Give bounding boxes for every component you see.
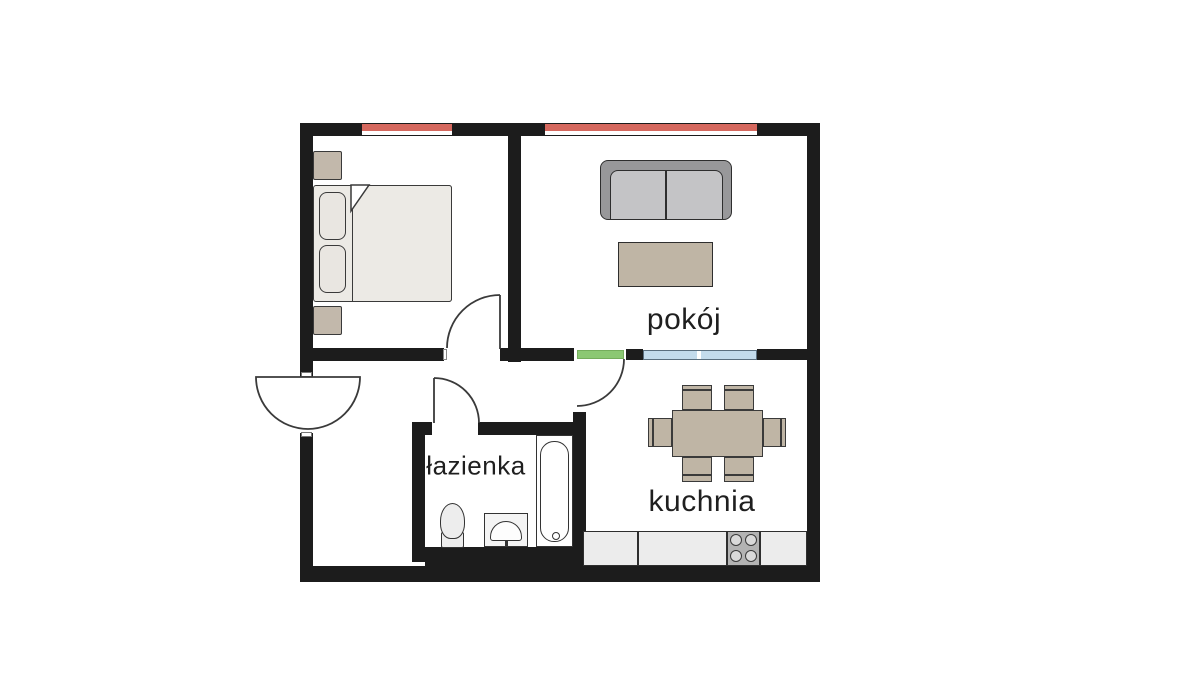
bathroom-door-arc — [434, 378, 479, 423]
bed-duvet-fold — [351, 185, 369, 211]
entrance-door-swing — [256, 377, 360, 429]
kitchen-door-arc — [577, 359, 624, 406]
floor-plan: pokój łazienka kuchnia — [0, 0, 1200, 675]
door-swing-overlay — [0, 0, 1200, 675]
bedroom-door-arc — [447, 295, 500, 348]
